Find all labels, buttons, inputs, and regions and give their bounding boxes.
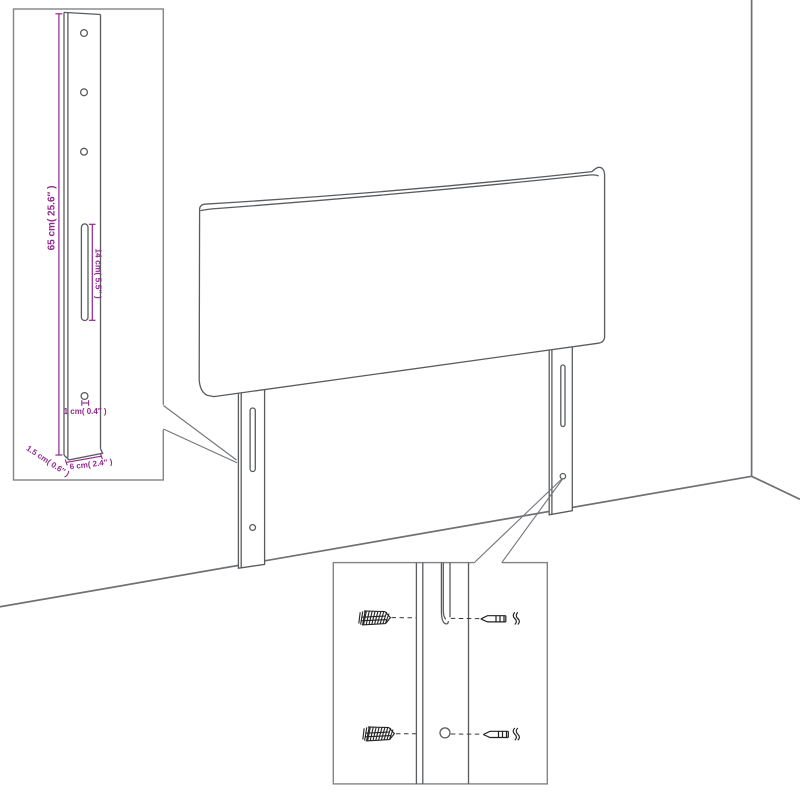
svg-text:65 cm( 25.6″ ): 65 cm( 25.6″ ) — [47, 186, 58, 251]
svg-text:1 cm( 0.4″ ): 1 cm( 0.4″ ) — [64, 407, 107, 416]
svg-text:14 cm( 5.5″ ): 14 cm( 5.5″ ) — [93, 248, 103, 299]
